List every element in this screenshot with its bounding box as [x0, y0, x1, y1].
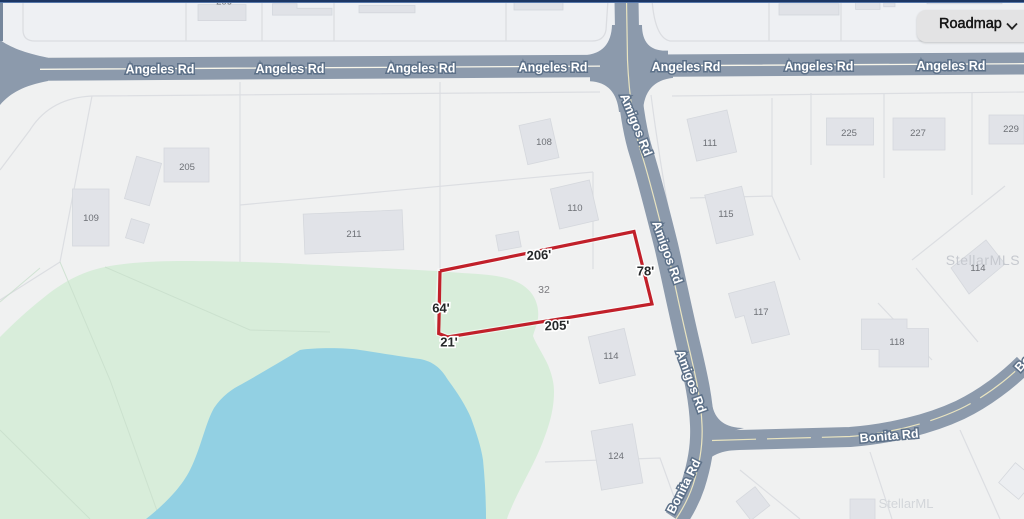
svg-text:78': 78' — [637, 264, 655, 279]
svg-text:114: 114 — [603, 351, 618, 362]
svg-text:205': 205' — [544, 318, 569, 334]
svg-text:StellarML: StellarML — [879, 496, 934, 511]
svg-text:Angeles Rd: Angeles Rd — [126, 63, 195, 77]
svg-text:118: 118 — [889, 337, 904, 348]
svg-text:110: 110 — [567, 203, 582, 214]
svg-text:32: 32 — [538, 284, 550, 296]
svg-text:211: 211 — [346, 229, 361, 240]
svg-text:Angeles Rd: Angeles Rd — [256, 62, 325, 76]
svg-text:Angeles Rd: Angeles Rd — [387, 61, 456, 75]
svg-text:124: 124 — [608, 451, 624, 462]
svg-text:109: 109 — [83, 213, 99, 224]
svg-text:Angeles Rd: Angeles Rd — [785, 59, 854, 73]
svg-text:225: 225 — [841, 128, 857, 139]
svg-text:64': 64' — [432, 301, 450, 316]
svg-text:205: 205 — [179, 162, 195, 173]
svg-text:229: 229 — [1003, 124, 1019, 135]
svg-text:111: 111 — [703, 138, 717, 149]
svg-text:Angeles Rd: Angeles Rd — [519, 61, 588, 75]
svg-text:StellarMLS: StellarMLS — [946, 252, 1020, 268]
svg-text:108: 108 — [536, 137, 552, 148]
svg-text:227: 227 — [910, 128, 926, 139]
svg-text:Angeles Rd: Angeles Rd — [652, 60, 721, 74]
svg-text:Angeles Rd: Angeles Rd — [917, 59, 986, 73]
svg-text:21': 21' — [440, 335, 458, 350]
svg-text:117: 117 — [753, 307, 768, 318]
svg-text:115: 115 — [718, 209, 733, 220]
svg-text:206': 206' — [526, 247, 552, 263]
